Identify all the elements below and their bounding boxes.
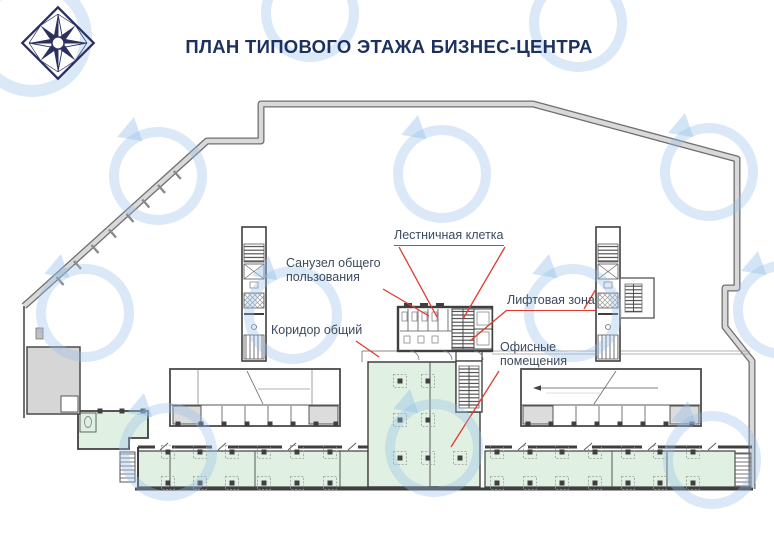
label-offices: Офисные помещения [500, 341, 592, 369]
diamond-compass-rose-logo-icon [20, 5, 96, 81]
left-office-block [170, 369, 340, 426]
right-office-block [521, 369, 701, 426]
left-stair-tower [242, 227, 266, 361]
central-stair-column [456, 351, 482, 412]
floor-plan-page: ПЛАН ТИПОВОГО ЭТАЖА БИЗНЕС-ЦЕНТРА Лестни… [0, 0, 774, 537]
label-staircase: Лестничная клетка [394, 229, 504, 246]
label-common-corridor: Коридор общий [271, 324, 362, 338]
central-core [398, 303, 492, 360]
label-shared-bathroom: Санузел общего пользования [286, 257, 390, 285]
page-title: ПЛАН ТИПОВОГО ЭТАЖА БИЗНЕС-ЦЕНТРА [184, 36, 594, 58]
label-elevator-zone: Лифтовая зона [507, 294, 595, 311]
right-stair-tower [596, 227, 654, 361]
terrace [27, 328, 80, 414]
